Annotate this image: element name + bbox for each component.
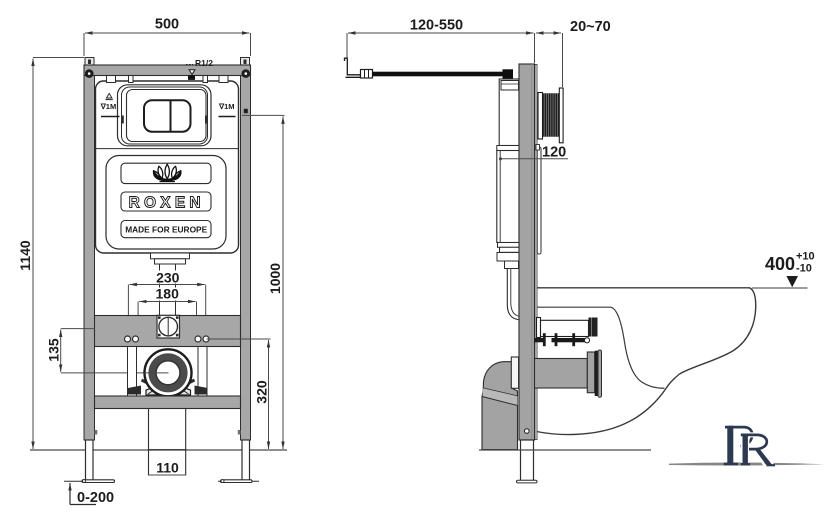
svg-text:0-200: 0-200 [77, 490, 114, 506]
svg-text:180: 180 [156, 286, 180, 302]
svg-text:135: 135 [46, 338, 62, 362]
svg-text:20~70: 20~70 [570, 19, 611, 35]
svg-text:∇1M: ∇1M [100, 102, 116, 111]
svg-text:320: 320 [254, 380, 270, 404]
svg-text:∇1M: ∇1M [218, 102, 234, 111]
svg-text:230: 230 [156, 270, 180, 286]
svg-text:500: 500 [155, 17, 179, 33]
svg-text:ROXEN: ROXEN [129, 194, 205, 211]
svg-text:1000: 1000 [267, 263, 283, 294]
svg-text:400: 400 [765, 254, 795, 274]
svg-text:+10: +10 [796, 251, 815, 263]
svg-text:120-550: 120-550 [410, 18, 463, 34]
svg-text:1140: 1140 [17, 240, 33, 271]
svg-text:R1/2: R1/2 [195, 58, 213, 68]
svg-text:MADE FOR EUROPE: MADE FOR EUROPE [125, 224, 207, 234]
svg-text:-10: -10 [796, 263, 812, 275]
svg-text:120: 120 [542, 145, 566, 161]
svg-text:110: 110 [156, 460, 179, 476]
